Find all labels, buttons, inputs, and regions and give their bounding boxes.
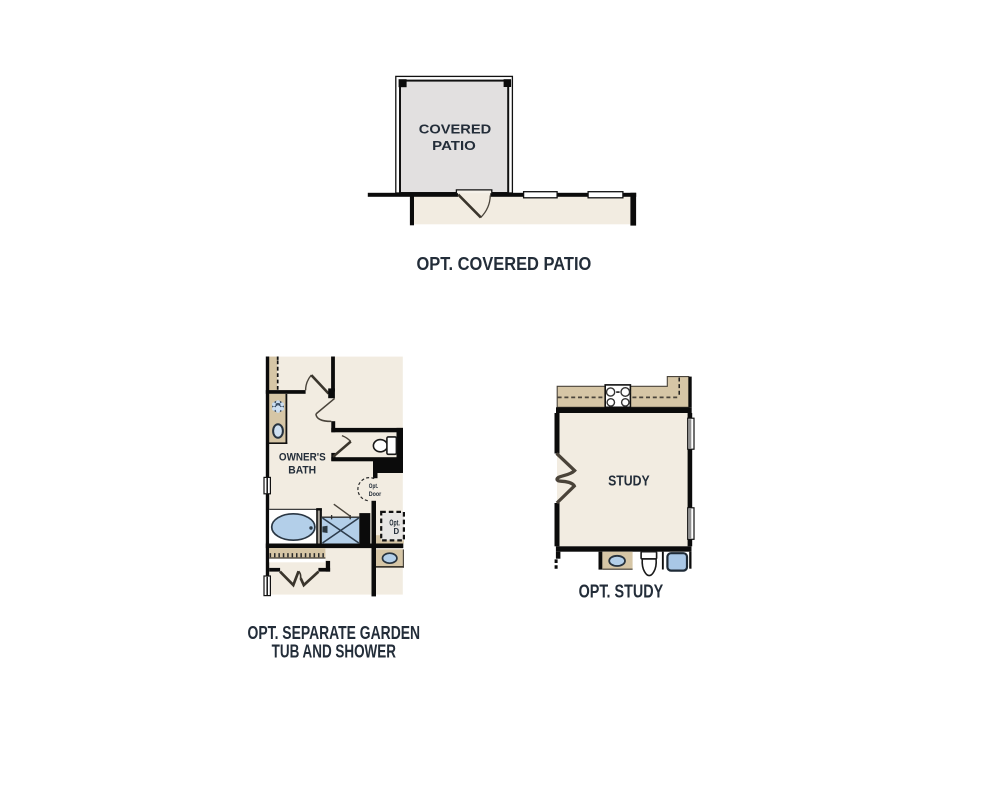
svg-text:COVERED: COVERED	[419, 122, 491, 136]
svg-text:OPT. SEPARATE GARDEN: OPT. SEPARATE GARDEN	[248, 623, 421, 643]
svg-text:STUDY: STUDY	[608, 474, 650, 490]
svg-text:BATH: BATH	[288, 464, 316, 476]
svg-text:OPT. STUDY: OPT. STUDY	[579, 581, 664, 601]
svg-text:TUB AND SHOWER: TUB AND SHOWER	[272, 642, 396, 662]
svg-text:OPT. COVERED PATIO: OPT. COVERED PATIO	[417, 254, 592, 274]
svg-text:PATIO: PATIO	[432, 139, 476, 153]
svg-text:D: D	[393, 527, 399, 536]
svg-text:Opt.: Opt.	[369, 483, 378, 490]
svg-text:Door: Door	[369, 491, 382, 498]
svg-text:OWNER'S: OWNER'S	[279, 452, 326, 464]
